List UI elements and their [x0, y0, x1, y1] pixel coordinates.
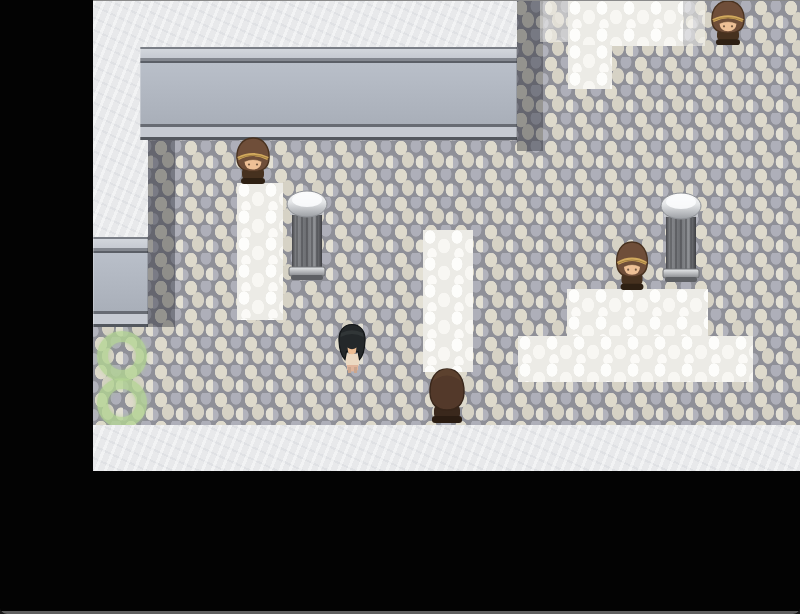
player-character: [335, 323, 369, 374]
wall-left: [93, 237, 148, 327]
white-tile-step-upper: [567, 289, 708, 336]
wall-top: [140, 47, 517, 140]
pillar-left: [284, 189, 330, 282]
game-window: [0, 0, 800, 614]
letterbox-left: [0, 0, 93, 614]
white-tile-topright-faded: [540, 1, 568, 42]
moss-ring-eight: [94, 331, 152, 428]
white-tile-step-lower: [518, 336, 753, 382]
white-tile-topright-edge: [683, 1, 705, 46]
white-tile-path-left: [237, 183, 283, 320]
game-viewport[interactable]: [93, 1, 800, 471]
npc-hooded-left[interactable]: [231, 137, 275, 185]
npc-hooded-topright[interactable]: [706, 1, 750, 46]
pillar-right: [658, 191, 704, 284]
marble-walkway-bottom: [93, 425, 800, 471]
marble-ledge-top: [93, 1, 517, 47]
white-tile-topright-column: [568, 45, 612, 89]
wall-shadow-left: [148, 140, 175, 327]
white-tile-topright: [568, 1, 683, 46]
npc-hooded-back[interactable]: [424, 367, 470, 425]
letterbox-bottom: [93, 471, 800, 614]
npc-hooded-right[interactable]: [611, 241, 653, 291]
white-tile-path-middle: [423, 230, 473, 372]
